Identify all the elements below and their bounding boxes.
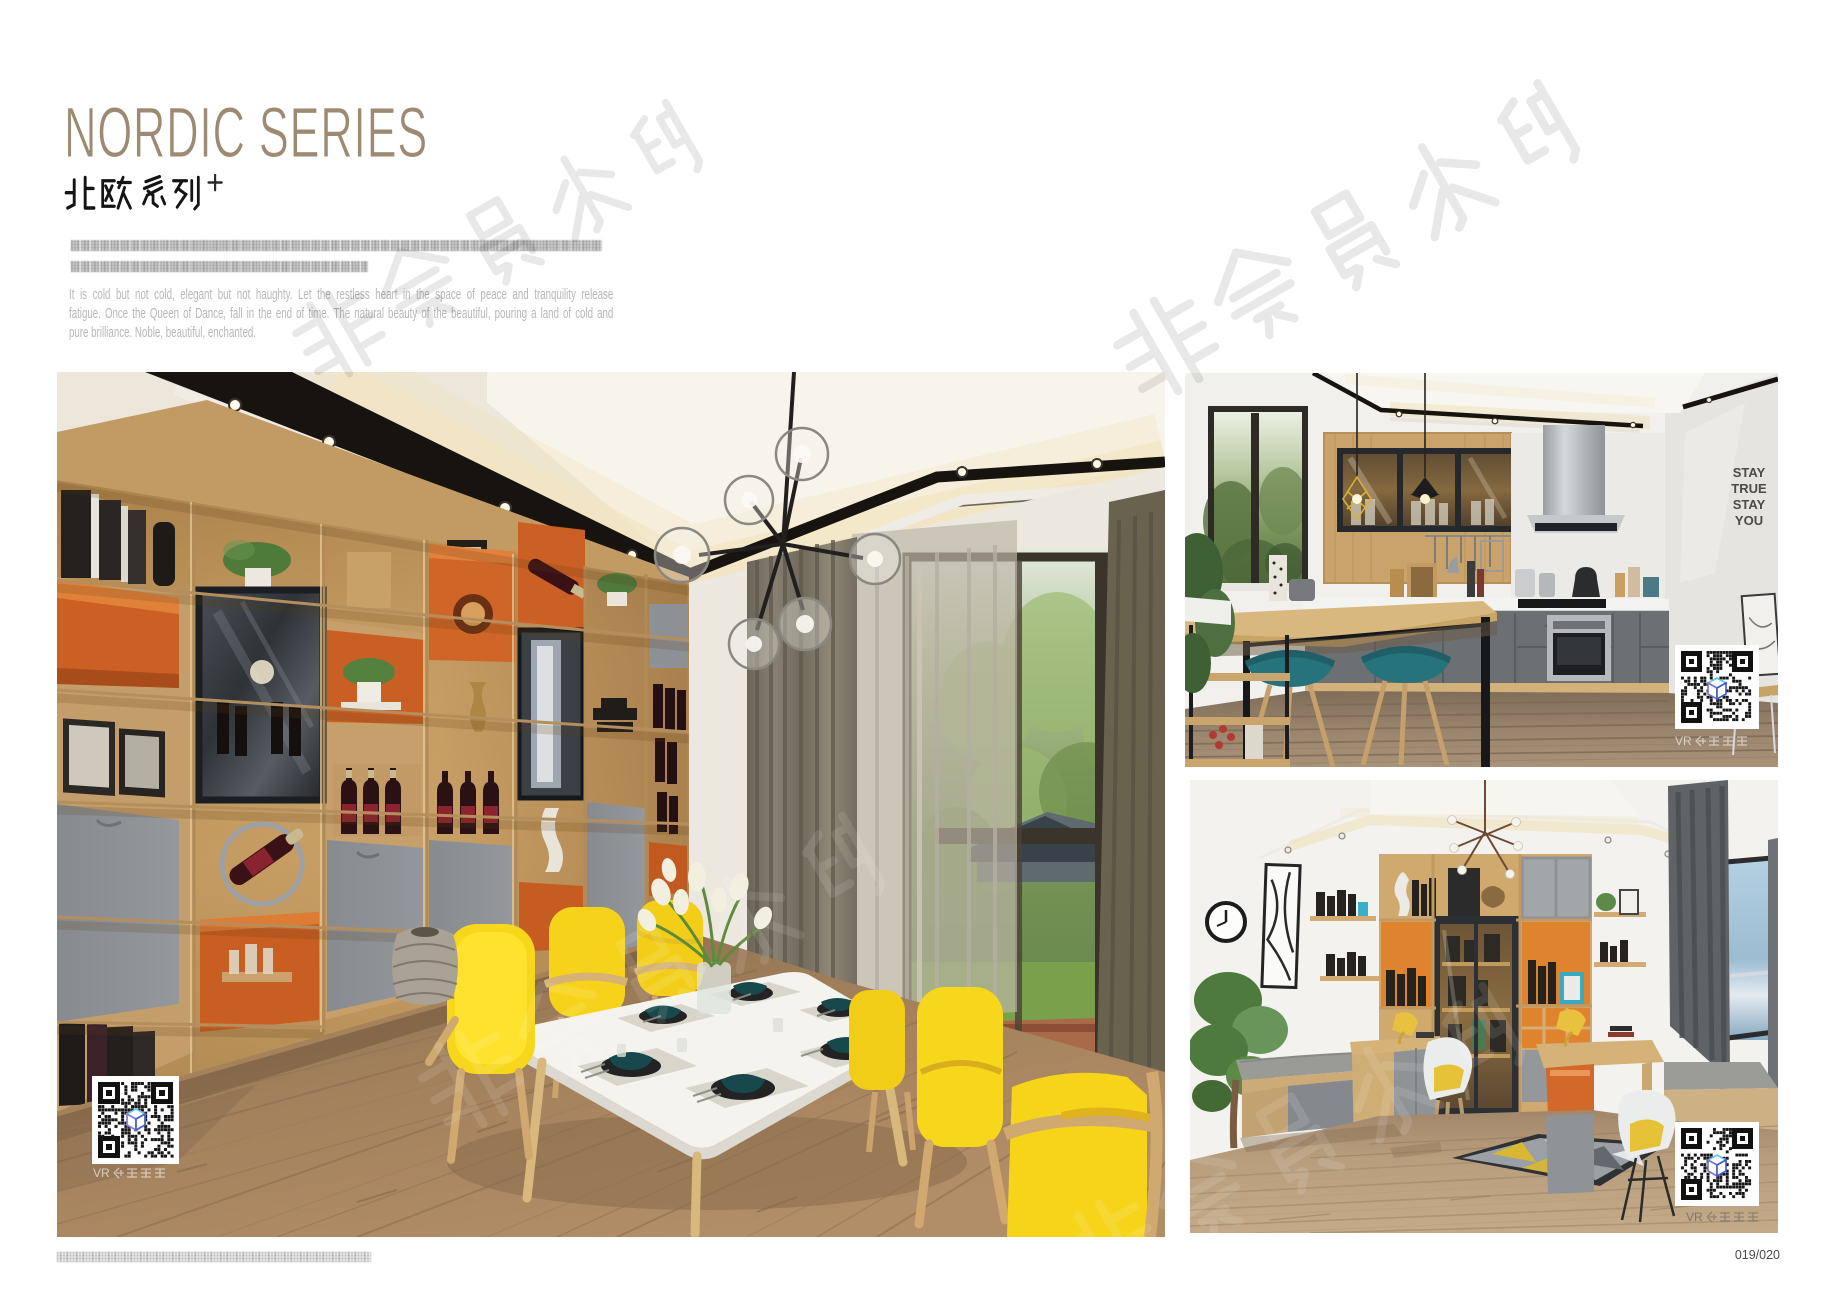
svg-text:STAY: STAY: [1733, 465, 1766, 480]
svg-text:YOU: YOU: [1735, 513, 1763, 528]
svg-text:STAY: STAY: [1733, 497, 1766, 512]
svg-text:VR: VR: [1675, 734, 1692, 748]
svg-text:TRUE: TRUE: [1731, 481, 1767, 496]
svg-text:VR: VR: [1686, 1210, 1703, 1224]
svg-text:VR: VR: [93, 1166, 110, 1180]
